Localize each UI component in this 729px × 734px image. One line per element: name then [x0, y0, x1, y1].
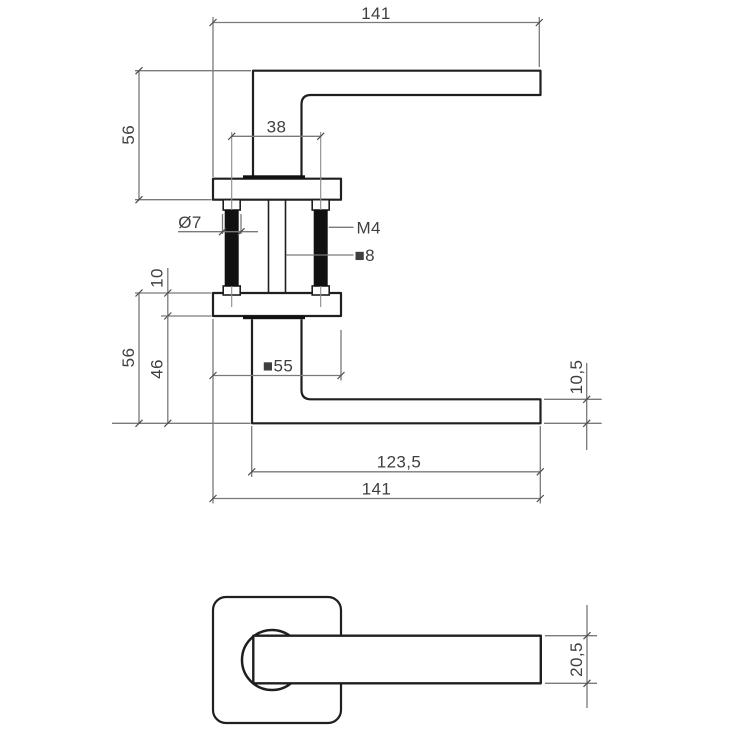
- dim-screw-diameter-group: Ø7: [178, 213, 258, 235]
- dim-screw-spacing-group: 38: [228, 118, 324, 140]
- lower-collar-band: [243, 316, 305, 319]
- front-view: [213, 597, 541, 723]
- dim-total-length-top-group: 141: [210, 4, 543, 177]
- dim-total-length-side: 141: [362, 480, 392, 499]
- dim-total-length-top: 141: [361, 4, 391, 23]
- dim-grip-length-group: 123,5: [248, 426, 544, 504]
- dim-grip-thickness: 10,5: [567, 360, 586, 395]
- dim-screw-spacing: 38: [267, 118, 287, 137]
- section-view: [213, 132, 341, 319]
- top-lever-outline: [253, 71, 541, 176]
- dim-height-side: 56: [119, 348, 138, 368]
- side-view: [252, 319, 541, 423]
- dim-rosette-width: ■55: [263, 357, 293, 376]
- dim-grip-width: 20,5: [567, 642, 586, 677]
- dim-spindle-size: ■8: [355, 246, 376, 265]
- dim-screw-diameter: Ø7: [178, 213, 201, 232]
- dim-thread-size: M4: [357, 219, 381, 238]
- dim-rosette-thickness: 10: [148, 268, 167, 288]
- upper-collar-band: [243, 175, 305, 178]
- left-screw-rod: [225, 210, 239, 286]
- side-lever-outline: [252, 319, 541, 423]
- dim-grip-length: 123,5: [377, 453, 422, 472]
- top-view: [213, 71, 541, 200]
- drawing-svg: 141 56 38 Ø7 M4 ■8: [0, 0, 729, 734]
- dim-neck-height: 46: [148, 359, 167, 379]
- dim-total-length-side-group: 141: [210, 480, 544, 503]
- dim-grip-width-group: 20,5: [545, 605, 597, 708]
- dim-height-top: 56: [119, 125, 138, 145]
- dim-rosette-thickness-group: 10: [135, 268, 212, 320]
- front-lever-bar: [253, 636, 541, 684]
- dim-rosette-width-group: ■55: [210, 319, 345, 504]
- technical-drawing-canvas: 141 56 38 Ø7 M4 ■8: [0, 0, 729, 734]
- dim-grip-thickness-group: 10,5: [544, 360, 602, 450]
- dim-neck-height-group: 46: [148, 316, 172, 427]
- right-screw-rod: [314, 210, 328, 286]
- dim-spindle-size-group: ■8: [286, 246, 375, 265]
- dim-thread-size-group: M4: [329, 219, 381, 238]
